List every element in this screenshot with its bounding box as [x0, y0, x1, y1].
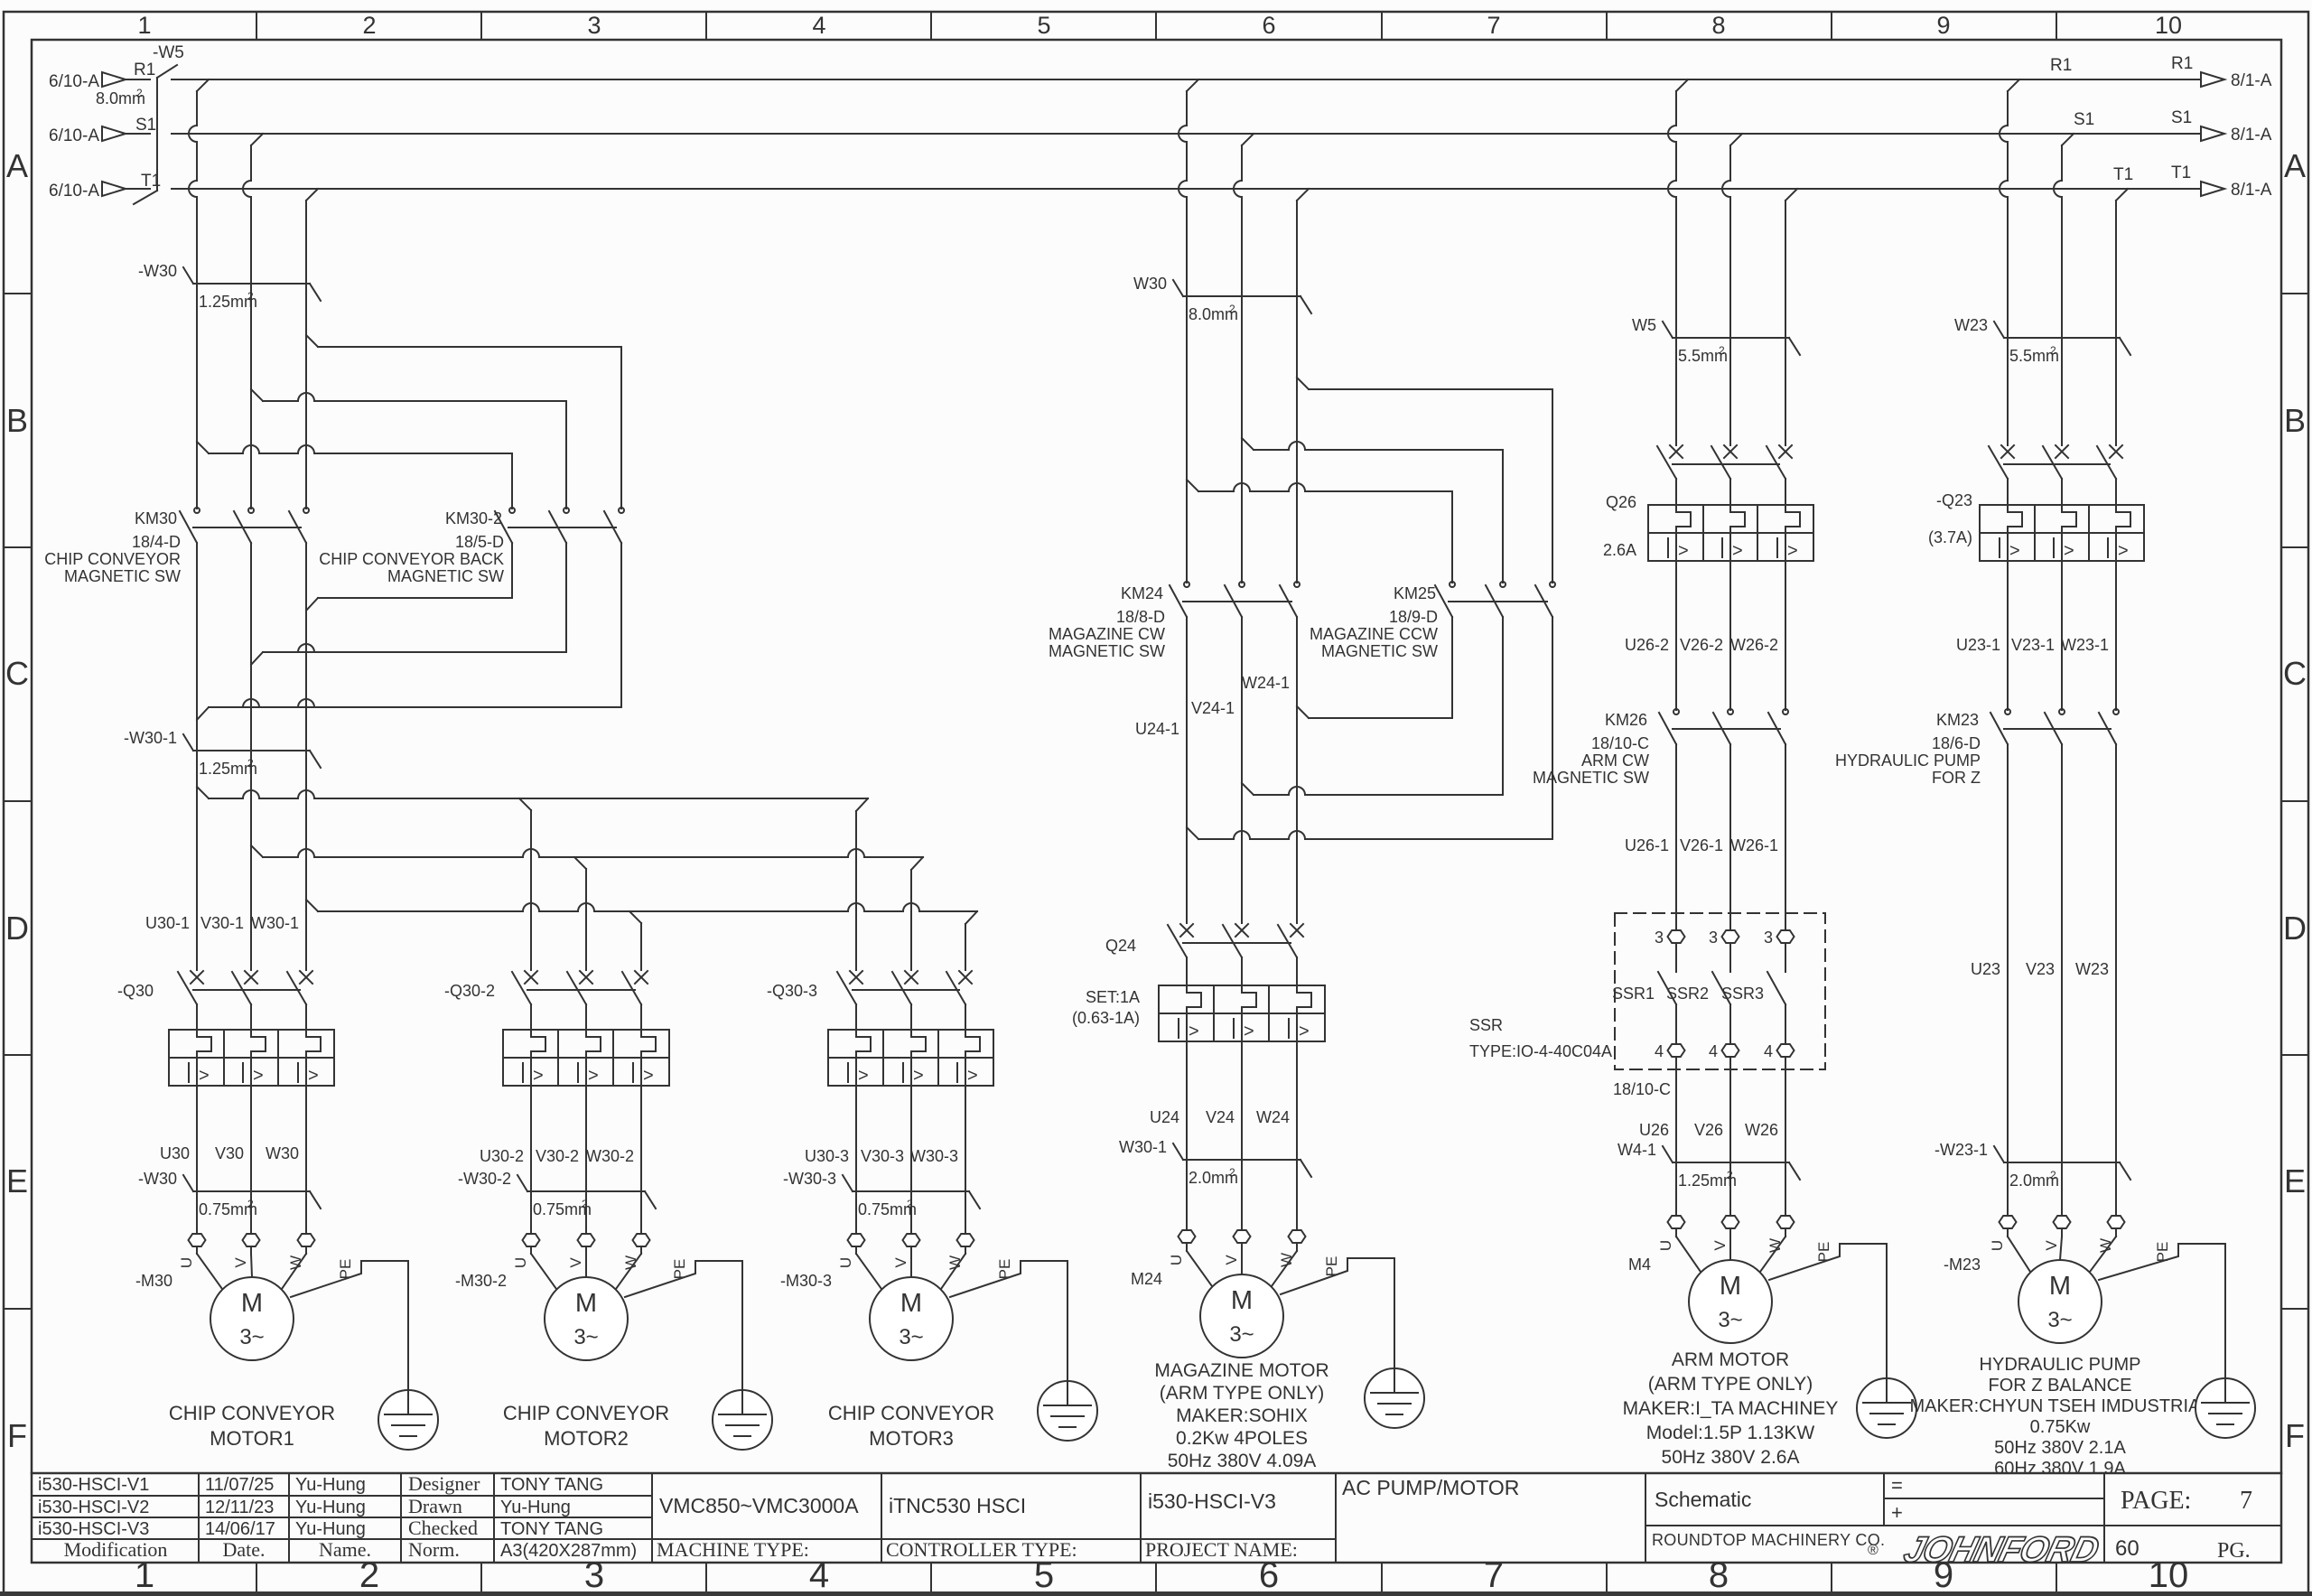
- svg-text:MOTOR1: MOTOR1: [210, 1427, 294, 1450]
- svg-text:KM24: KM24: [1121, 584, 1163, 602]
- svg-text:-W5: -W5: [153, 43, 184, 62]
- svg-text:TYPE:IO-4-40C04A: TYPE:IO-4-40C04A: [1469, 1042, 1612, 1060]
- svg-text:5: 5: [1037, 12, 1050, 39]
- svg-text:FOR Z: FOR Z: [1932, 769, 1981, 787]
- svg-text:3~: 3~: [2047, 1308, 2072, 1332]
- svg-text:18/6-D: 18/6-D: [1932, 734, 1981, 752]
- svg-text:SSR3: SSR3: [1721, 985, 1764, 1003]
- svg-text:MAKER:SOHIX: MAKER:SOHIX: [1176, 1405, 1308, 1426]
- svg-text:Checked: Checked: [408, 1517, 478, 1539]
- svg-text:(ARM TYPE ONLY): (ARM TYPE ONLY): [1648, 1374, 1813, 1395]
- svg-text:2: 2: [2050, 344, 2056, 357]
- svg-text:C: C: [2283, 655, 2307, 692]
- svg-text:®: ®: [1868, 1543, 1878, 1558]
- svg-text:i530-HSCI-V2: i530-HSCI-V2: [38, 1498, 149, 1517]
- svg-text:MAGNETIC SW: MAGNETIC SW: [64, 567, 181, 585]
- svg-text:HYDRAULIC PUMP: HYDRAULIC PUMP: [1980, 1355, 2141, 1375]
- svg-text:Yu-Hung: Yu-Hung: [295, 1498, 366, 1517]
- svg-text:SSR1: SSR1: [1612, 985, 1655, 1003]
- svg-text:U30-1: U30-1: [145, 914, 190, 932]
- svg-text:U26-2: U26-2: [1625, 636, 1669, 654]
- svg-text:W: W: [287, 1255, 304, 1270]
- svg-text:HYDRAULIC PUMP: HYDRAULIC PUMP: [1835, 751, 1981, 770]
- svg-text:B: B: [2284, 402, 2306, 439]
- svg-text:PE: PE: [2154, 1242, 2171, 1263]
- svg-text:12/11/23: 12/11/23: [205, 1498, 274, 1517]
- svg-text:-W30: -W30: [138, 1170, 177, 1188]
- svg-text:i530-HSCI-V3: i530-HSCI-V3: [1148, 1489, 1276, 1513]
- svg-text:Modification: Modification: [64, 1538, 168, 1561]
- svg-text:W5: W5: [1632, 316, 1656, 334]
- svg-text:T1: T1: [2113, 165, 2133, 184]
- svg-text:-Q23: -Q23: [1936, 491, 1972, 509]
- svg-text:PAGE:: PAGE:: [2121, 1487, 2191, 1515]
- svg-text:(3.7A): (3.7A): [1928, 528, 1972, 546]
- svg-text:Designer: Designer: [408, 1472, 480, 1495]
- svg-text:MAGNETIC SW: MAGNETIC SW: [1049, 642, 1165, 660]
- svg-text:W24: W24: [1256, 1108, 1290, 1126]
- svg-text:PG.: PG.: [2217, 1539, 2251, 1563]
- svg-text:1: 1: [135, 1555, 154, 1595]
- svg-text:-W30-3: -W30-3: [783, 1170, 836, 1188]
- svg-text:SSR2: SSR2: [1666, 985, 1709, 1003]
- svg-text:W30-1: W30-1: [251, 914, 299, 932]
- svg-text:Yu-Hung: Yu-Hung: [295, 1519, 366, 1539]
- svg-text:>: >: [588, 1066, 599, 1086]
- svg-text:SSR: SSR: [1469, 1016, 1503, 1034]
- svg-text:W26-1: W26-1: [1730, 836, 1778, 854]
- svg-text:F: F: [7, 1417, 27, 1454]
- svg-text:MOTOR3: MOTOR3: [869, 1427, 954, 1450]
- svg-text:18/9-D: 18/9-D: [1389, 608, 1438, 626]
- svg-text:3: 3: [1709, 929, 1718, 947]
- svg-text:W30-3: W30-3: [910, 1147, 958, 1165]
- svg-text:Date.: Date.: [222, 1538, 265, 1561]
- svg-text:2: 2: [1229, 1166, 1235, 1179]
- svg-text:>: >: [2064, 541, 2074, 561]
- svg-text:2: 2: [2050, 1169, 2056, 1181]
- svg-text:8: 8: [1711, 12, 1725, 39]
- svg-text:C: C: [5, 655, 29, 692]
- svg-text:U26: U26: [1639, 1121, 1669, 1139]
- svg-text:W23-1: W23-1: [2061, 636, 2109, 654]
- svg-text:Yu-Hung: Yu-Hung: [295, 1475, 366, 1495]
- svg-text:MAGNETIC SW: MAGNETIC SW: [1533, 769, 1649, 787]
- svg-text:CHIP CONVEYOR BACK: CHIP CONVEYOR BACK: [319, 550, 504, 568]
- svg-text:TONY TANG: TONY TANG: [500, 1519, 603, 1539]
- svg-text:2: 2: [359, 1555, 379, 1595]
- svg-text:W30: W30: [266, 1144, 299, 1162]
- svg-text:W: W: [946, 1255, 964, 1270]
- svg-text:-M30-2: -M30-2: [455, 1272, 507, 1290]
- svg-text:-M23: -M23: [1944, 1255, 1981, 1274]
- svg-text:6/10-A: 6/10-A: [49, 182, 99, 201]
- svg-text:U: U: [837, 1257, 854, 1268]
- svg-text:ARM MOTOR: ARM MOTOR: [1672, 1349, 1789, 1370]
- svg-text:3: 3: [1764, 929, 1773, 947]
- svg-text:2: 2: [136, 87, 143, 99]
- svg-text:MAKER:CHYUN TSEH IMDUSTRIAL: MAKER:CHYUN TSEH IMDUSTRIAL: [1909, 1396, 2210, 1416]
- svg-text:3~: 3~: [1229, 1322, 1254, 1347]
- svg-text:50Hz 380V 4.09A: 50Hz 380V 4.09A: [1168, 1451, 1317, 1471]
- svg-text:>: >: [199, 1066, 210, 1086]
- svg-text:1: 1: [137, 12, 151, 39]
- svg-text:4: 4: [1709, 1042, 1718, 1060]
- svg-text:R1: R1: [2050, 56, 2072, 75]
- svg-text:>: >: [2009, 541, 2020, 561]
- svg-text:MAGAZINE CCW: MAGAZINE CCW: [1310, 625, 1438, 643]
- svg-text:V: V: [232, 1257, 249, 1268]
- svg-text:JOHNFORD: JOHNFORD: [1900, 1529, 2103, 1570]
- svg-text:7: 7: [1484, 1555, 1504, 1595]
- svg-text:W: W: [622, 1255, 639, 1270]
- svg-text:Norm.: Norm.: [408, 1538, 460, 1561]
- svg-text:2: 2: [1229, 303, 1235, 315]
- svg-text:-Q30: -Q30: [117, 982, 154, 1000]
- svg-text:W4-1: W4-1: [1617, 1141, 1656, 1159]
- svg-text:M: M: [2049, 1272, 2071, 1301]
- svg-text:11/07/25: 11/07/25: [205, 1475, 274, 1495]
- svg-text:7: 7: [1487, 12, 1500, 39]
- svg-text:R1: R1: [2171, 54, 2193, 73]
- svg-text:W26-2: W26-2: [1730, 636, 1778, 654]
- svg-text:-W30-2: -W30-2: [458, 1170, 511, 1188]
- svg-text:U30-2: U30-2: [480, 1147, 524, 1165]
- svg-text:V30-2: V30-2: [536, 1147, 579, 1165]
- svg-text:4: 4: [812, 12, 825, 39]
- svg-text:M: M: [1231, 1286, 1253, 1315]
- svg-text:-W30: -W30: [138, 262, 177, 280]
- svg-text:F: F: [2285, 1417, 2305, 1454]
- svg-text:60Hz 380V 1.9A: 60Hz 380V 1.9A: [1994, 1459, 2126, 1479]
- svg-text:E: E: [6, 1162, 28, 1199]
- svg-text:PE: PE: [337, 1259, 354, 1280]
- svg-text:3~: 3~: [899, 1325, 923, 1349]
- svg-text:MAGNETIC SW: MAGNETIC SW: [387, 567, 504, 585]
- svg-text:MAGNETIC SW: MAGNETIC SW: [1321, 642, 1438, 660]
- svg-text:W: W: [1767, 1238, 1784, 1253]
- svg-text:6/10-A: 6/10-A: [49, 72, 99, 91]
- svg-text:W23: W23: [1954, 316, 1988, 334]
- svg-text:AC PUMP/MOTOR: AC PUMP/MOTOR: [1342, 1476, 1519, 1499]
- svg-text:MAGAZINE CW: MAGAZINE CW: [1049, 625, 1165, 643]
- svg-text:18/4-D: 18/4-D: [132, 533, 181, 551]
- svg-text:i530-HSCI-V1: i530-HSCI-V1: [38, 1475, 149, 1495]
- svg-text:6: 6: [1262, 12, 1275, 39]
- svg-text:W30-2: W30-2: [586, 1147, 634, 1165]
- svg-text:(ARM TYPE ONLY): (ARM TYPE ONLY): [1160, 1383, 1324, 1404]
- svg-text:M: M: [900, 1289, 922, 1318]
- svg-text:>: >: [967, 1066, 978, 1086]
- svg-text:U30: U30: [160, 1144, 190, 1162]
- svg-text:2: 2: [247, 757, 254, 770]
- svg-text:18/10-C: 18/10-C: [1591, 734, 1649, 752]
- svg-text:>: >: [533, 1066, 544, 1086]
- svg-text:M24: M24: [1131, 1270, 1162, 1288]
- svg-text:3~: 3~: [573, 1325, 598, 1349]
- svg-text:FOR Z BALANCE: FOR Z BALANCE: [1989, 1376, 2132, 1395]
- svg-text:(0.63-1A): (0.63-1A): [1072, 1009, 1140, 1027]
- svg-text:>: >: [1787, 541, 1798, 561]
- svg-text:D: D: [2283, 910, 2307, 947]
- svg-text:KM30-2: KM30-2: [445, 509, 502, 527]
- svg-text:>: >: [1678, 541, 1689, 561]
- svg-text:-W23-1: -W23-1: [1934, 1141, 1988, 1159]
- svg-text:Yu-Hung: Yu-Hung: [500, 1498, 571, 1517]
- svg-text:-Q30-3: -Q30-3: [767, 982, 817, 1000]
- svg-text:5: 5: [1034, 1555, 1054, 1595]
- svg-text:W24-1: W24-1: [1242, 674, 1290, 692]
- svg-text:U: U: [1989, 1240, 2006, 1251]
- svg-text:VMC850~VMC3000A: VMC850~VMC3000A: [659, 1494, 859, 1517]
- svg-text:>: >: [1299, 1022, 1310, 1041]
- svg-text:V26-1: V26-1: [1680, 836, 1723, 854]
- svg-text:+: +: [1891, 1501, 1903, 1524]
- svg-text:4: 4: [809, 1555, 829, 1595]
- svg-text:V26-2: V26-2: [1680, 636, 1723, 654]
- svg-text:W23: W23: [2075, 960, 2109, 978]
- svg-text:U24: U24: [1150, 1108, 1179, 1126]
- svg-text:4: 4: [1764, 1042, 1773, 1060]
- svg-text:V24-1: V24-1: [1191, 699, 1235, 717]
- svg-text:B: B: [6, 402, 28, 439]
- svg-text:3~: 3~: [239, 1325, 264, 1349]
- svg-text:iTNC530 HSCI: iTNC530 HSCI: [889, 1494, 1026, 1517]
- svg-text:3: 3: [587, 12, 601, 39]
- svg-text:PE: PE: [1815, 1242, 1832, 1263]
- svg-text:CONTROLLER TYPE:: CONTROLLER TYPE:: [886, 1538, 1077, 1561]
- svg-text:U24-1: U24-1: [1135, 720, 1179, 738]
- svg-text:R1: R1: [134, 61, 155, 79]
- svg-text:PE: PE: [671, 1259, 688, 1280]
- svg-text:=: =: [1891, 1474, 1903, 1497]
- svg-text:>: >: [1732, 541, 1743, 561]
- svg-text:U23-1: U23-1: [1956, 636, 2000, 654]
- svg-text:>: >: [253, 1066, 264, 1086]
- svg-text:8/1-A: 8/1-A: [2231, 71, 2272, 90]
- svg-text:>: >: [1244, 1022, 1254, 1041]
- svg-text:-W30-1: -W30-1: [124, 729, 177, 747]
- svg-text:W26: W26: [1745, 1121, 1778, 1139]
- svg-text:V: V: [567, 1257, 584, 1268]
- svg-text:CHIP CONVEYOR: CHIP CONVEYOR: [503, 1402, 669, 1424]
- svg-text:V: V: [1711, 1240, 1729, 1251]
- svg-text:-M30: -M30: [135, 1272, 172, 1290]
- svg-text:MACHINE TYPE:: MACHINE TYPE:: [657, 1538, 809, 1561]
- svg-text:18/8-D: 18/8-D: [1116, 608, 1165, 626]
- svg-text:10: 10: [2155, 12, 2182, 39]
- svg-text:V: V: [892, 1257, 909, 1268]
- svg-text:V: V: [1223, 1255, 1240, 1265]
- svg-text:V23: V23: [2026, 960, 2055, 978]
- svg-text:A: A: [2284, 147, 2306, 184]
- svg-text:7: 7: [2240, 1487, 2252, 1515]
- svg-text:V24: V24: [1206, 1108, 1235, 1126]
- svg-text:>: >: [308, 1066, 319, 1086]
- svg-text:A3(420X287mm): A3(420X287mm): [500, 1541, 637, 1561]
- svg-text:PE: PE: [996, 1259, 1013, 1280]
- svg-text:PROJECT NAME:: PROJECT NAME:: [1145, 1538, 1298, 1561]
- svg-text:8/1-A: 8/1-A: [2231, 126, 2272, 145]
- svg-text:18/10-C: 18/10-C: [1613, 1080, 1671, 1098]
- svg-text:>: >: [913, 1066, 924, 1086]
- svg-text:8: 8: [1709, 1555, 1729, 1595]
- svg-text:3: 3: [584, 1555, 604, 1595]
- svg-text:2.6A: 2.6A: [1603, 541, 1636, 559]
- svg-text:S1: S1: [135, 116, 156, 135]
- svg-text:M4: M4: [1628, 1255, 1651, 1274]
- svg-text:S1: S1: [2074, 110, 2094, 129]
- svg-text:ARM CW: ARM CW: [1581, 751, 1649, 770]
- svg-text:14/06/17: 14/06/17: [205, 1519, 275, 1539]
- svg-text:V30-3: V30-3: [861, 1147, 904, 1165]
- svg-text:CHIP CONVEYOR: CHIP CONVEYOR: [828, 1402, 994, 1424]
- svg-text:6/10-A: 6/10-A: [49, 126, 99, 145]
- svg-text:A: A: [6, 147, 28, 184]
- svg-text:8/1-A: 8/1-A: [2231, 181, 2272, 200]
- svg-text:2: 2: [247, 290, 254, 303]
- svg-text:V: V: [2043, 1240, 2060, 1251]
- svg-text:W30-1: W30-1: [1119, 1138, 1167, 1156]
- svg-text:U: U: [178, 1257, 195, 1268]
- svg-text:W: W: [1278, 1253, 1295, 1267]
- svg-text:KM30: KM30: [135, 509, 177, 527]
- svg-text:6: 6: [1259, 1555, 1279, 1595]
- svg-text:Q26: Q26: [1606, 493, 1636, 511]
- svg-text:0.2Kw 4POLES: 0.2Kw 4POLES: [1176, 1428, 1308, 1449]
- svg-text:2: 2: [362, 12, 376, 39]
- svg-text:10: 10: [2149, 1555, 2189, 1595]
- svg-text:60: 60: [2115, 1536, 2140, 1561]
- svg-text:KM26: KM26: [1605, 711, 1647, 729]
- svg-text:MAGAZINE MOTOR: MAGAZINE MOTOR: [1154, 1360, 1328, 1381]
- svg-text:KM25: KM25: [1394, 584, 1436, 602]
- svg-text:9: 9: [1936, 12, 1950, 39]
- svg-text:>: >: [858, 1066, 869, 1086]
- svg-text:4: 4: [1655, 1042, 1664, 1060]
- svg-text:>: >: [1189, 1022, 1199, 1041]
- svg-text:50Hz 380V 2.1A: 50Hz 380V 2.1A: [1994, 1438, 2126, 1458]
- svg-text:M: M: [575, 1289, 597, 1318]
- svg-text:3: 3: [1655, 929, 1664, 947]
- svg-text:Model:1.5P 1.13KW: Model:1.5P 1.13KW: [1646, 1423, 1815, 1443]
- svg-text:U26-1: U26-1: [1625, 836, 1669, 854]
- svg-text:CHIP CONVEYOR: CHIP CONVEYOR: [169, 1402, 335, 1424]
- svg-text:>: >: [2118, 541, 2129, 561]
- svg-text:U: U: [1657, 1240, 1674, 1251]
- svg-text:U: U: [1168, 1255, 1185, 1265]
- svg-text:Schematic: Schematic: [1655, 1488, 1751, 1511]
- svg-text:Q24: Q24: [1105, 937, 1136, 955]
- svg-text:MOTOR2: MOTOR2: [544, 1427, 629, 1450]
- svg-text:>: >: [643, 1066, 654, 1086]
- svg-text:V30-1: V30-1: [200, 914, 244, 932]
- svg-text:SET:1A: SET:1A: [1086, 988, 1140, 1006]
- svg-text:S1: S1: [2171, 108, 2192, 127]
- svg-text:D: D: [5, 910, 29, 947]
- svg-text:W: W: [2097, 1238, 2114, 1253]
- svg-text:V30: V30: [215, 1144, 244, 1162]
- svg-text:U: U: [512, 1257, 529, 1268]
- svg-text:3~: 3~: [1718, 1308, 1742, 1332]
- svg-text:E: E: [2284, 1162, 2306, 1199]
- svg-text:TONY TANG: TONY TANG: [500, 1475, 603, 1495]
- svg-text:-Q30-2: -Q30-2: [444, 982, 495, 1000]
- svg-text:MAKER:I_TA MACHINEY: MAKER:I_TA MACHINEY: [1623, 1398, 1839, 1419]
- svg-text:W30: W30: [1133, 275, 1167, 293]
- svg-text:M: M: [241, 1289, 263, 1318]
- svg-text:0.75Kw: 0.75Kw: [2030, 1417, 2091, 1437]
- svg-text:Drawn: Drawn: [408, 1495, 462, 1517]
- svg-text:2: 2: [1719, 344, 1725, 357]
- svg-text:i530-HSCI-V3: i530-HSCI-V3: [38, 1519, 149, 1539]
- svg-text:CHIP CONVEYOR: CHIP CONVEYOR: [44, 550, 181, 568]
- svg-text:KM23: KM23: [1936, 711, 1979, 729]
- svg-text:V23-1: V23-1: [2011, 636, 2055, 654]
- svg-text:T1: T1: [2171, 163, 2191, 182]
- svg-text:-M30-3: -M30-3: [780, 1272, 832, 1290]
- svg-text:PE: PE: [1323, 1256, 1340, 1277]
- svg-text:2: 2: [1727, 1169, 1733, 1181]
- svg-text:U30-3: U30-3: [805, 1147, 849, 1165]
- svg-text:V26: V26: [1694, 1121, 1723, 1139]
- svg-text:Name.: Name.: [319, 1538, 371, 1561]
- svg-text:M: M: [1720, 1272, 1741, 1301]
- svg-text:U23: U23: [1971, 960, 2000, 978]
- svg-text:ROUNDTOP MACHINERY CO.: ROUNDTOP MACHINERY CO.: [1652, 1531, 1885, 1549]
- svg-text:18/5-D: 18/5-D: [455, 533, 504, 551]
- svg-text:50Hz 380V 2.6A: 50Hz 380V 2.6A: [1662, 1447, 1800, 1468]
